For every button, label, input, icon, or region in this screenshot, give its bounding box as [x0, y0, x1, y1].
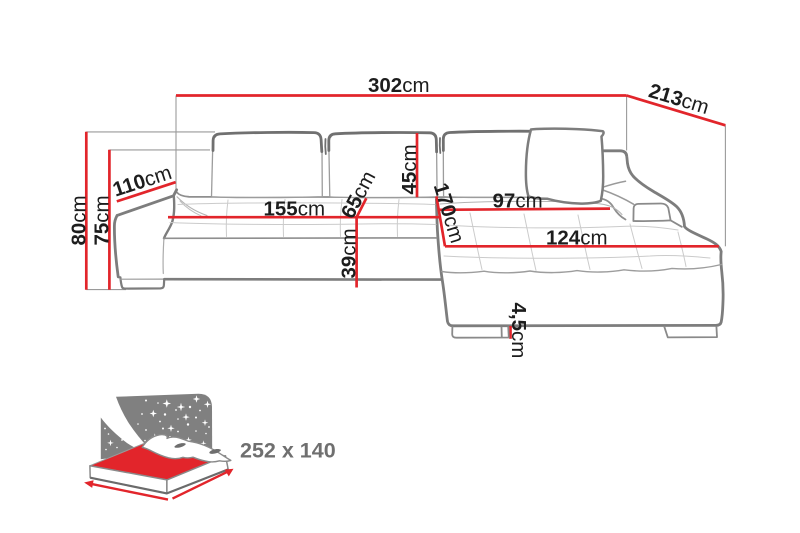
svg-text:39cm: 39cm [337, 228, 360, 278]
svg-text:155cm: 155cm [264, 197, 326, 220]
svg-text:45cm: 45cm [398, 144, 421, 194]
svg-text:302cm: 302cm [368, 74, 430, 97]
svg-text:80cm: 80cm [68, 195, 91, 245]
svg-text:75cm: 75cm [91, 195, 114, 245]
svg-text:252 x 140: 252 x 140 [240, 439, 336, 463]
svg-text:124cm: 124cm [546, 226, 608, 249]
svg-text:4,5cm: 4,5cm [507, 303, 530, 359]
svg-text:97cm: 97cm [493, 190, 543, 213]
